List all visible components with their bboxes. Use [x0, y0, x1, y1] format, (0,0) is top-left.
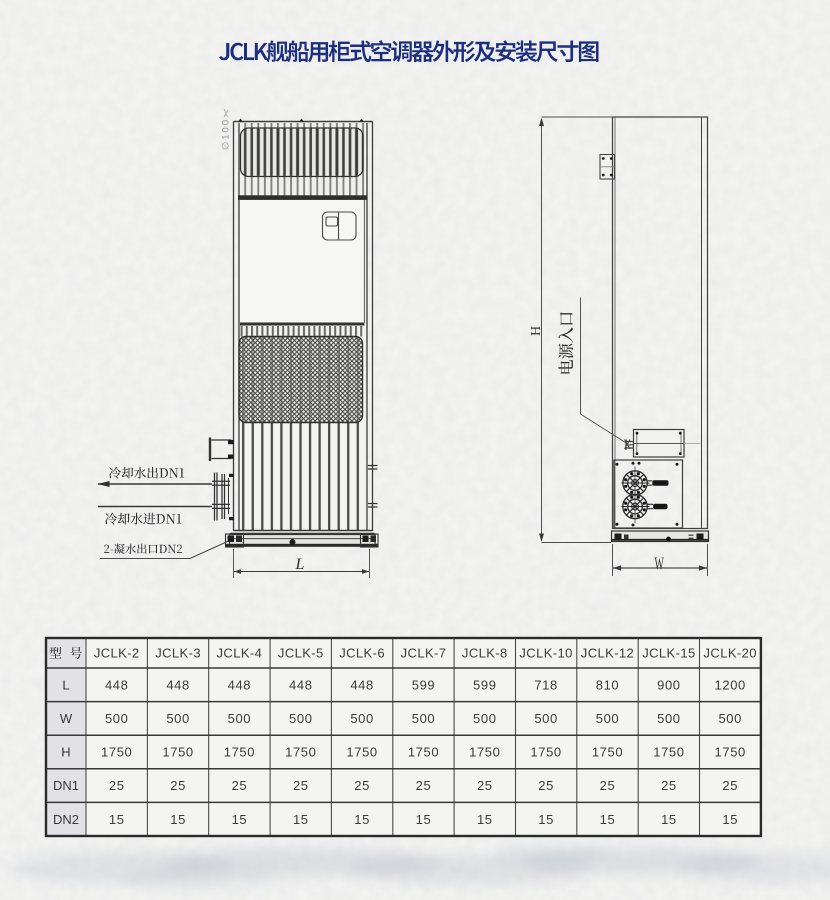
- svg-text:JCLK-10: JCLK-10: [519, 646, 572, 661]
- svg-text:1750: 1750: [224, 745, 255, 760]
- svg-text:1750: 1750: [162, 745, 193, 760]
- svg-text:JCLK-5: JCLK-5: [278, 646, 324, 661]
- svg-text:1750: 1750: [469, 745, 500, 760]
- svg-text:25: 25: [109, 778, 125, 793]
- svg-text:25: 25: [538, 778, 554, 793]
- svg-text:1750: 1750: [101, 745, 132, 760]
- svg-text:500: 500: [228, 711, 252, 726]
- svg-text:500: 500: [718, 711, 742, 726]
- svg-text:15: 15: [293, 812, 309, 827]
- svg-text:∅100: ∅100: [221, 118, 232, 150]
- svg-text:25: 25: [170, 778, 186, 793]
- svg-text:25: 25: [232, 778, 248, 793]
- svg-text:15: 15: [477, 812, 493, 827]
- svg-text:500: 500: [657, 711, 681, 726]
- svg-text:500: 500: [166, 711, 190, 726]
- svg-text:718: 718: [534, 677, 558, 692]
- svg-text:1750: 1750: [715, 745, 746, 760]
- svg-text:15: 15: [600, 812, 616, 827]
- svg-text:500: 500: [412, 711, 436, 726]
- svg-text:15: 15: [416, 812, 432, 827]
- svg-text:500: 500: [534, 711, 558, 726]
- svg-text:599: 599: [412, 677, 436, 692]
- svg-text:15: 15: [109, 812, 125, 827]
- svg-text:JCLK-3: JCLK-3: [155, 646, 201, 661]
- svg-text:25: 25: [477, 778, 493, 793]
- svg-text:599: 599: [473, 677, 497, 692]
- svg-text:JCLK-2: JCLK-2: [94, 646, 140, 661]
- svg-text:W: W: [60, 711, 73, 726]
- svg-text:15: 15: [722, 812, 738, 827]
- svg-text:JCLK-15: JCLK-15: [642, 646, 695, 661]
- svg-text:1750: 1750: [530, 745, 561, 760]
- svg-text:448: 448: [289, 677, 313, 692]
- svg-text:1750: 1750: [653, 745, 684, 760]
- svg-text:15: 15: [538, 812, 554, 827]
- svg-text:1750: 1750: [408, 745, 439, 760]
- svg-text:25: 25: [722, 778, 738, 793]
- svg-text:25: 25: [661, 778, 677, 793]
- svg-text:448: 448: [350, 677, 374, 692]
- svg-text:25: 25: [293, 778, 309, 793]
- svg-text:DN1: DN1: [53, 778, 79, 793]
- svg-text:1200: 1200: [715, 677, 746, 692]
- svg-text:JCLK-7: JCLK-7: [401, 646, 447, 661]
- svg-text:1750: 1750: [592, 745, 623, 760]
- svg-text:H: H: [529, 326, 544, 336]
- svg-text:1750: 1750: [346, 745, 377, 760]
- svg-text:1750: 1750: [285, 745, 316, 760]
- svg-text:H: H: [61, 745, 70, 760]
- svg-text:448: 448: [105, 677, 129, 692]
- svg-text:15: 15: [661, 812, 677, 827]
- svg-text:25: 25: [354, 778, 370, 793]
- svg-text:JCLK-20: JCLK-20: [704, 646, 757, 661]
- svg-text:15: 15: [354, 812, 370, 827]
- svg-text:W: W: [655, 555, 665, 575]
- svg-text:448: 448: [228, 677, 252, 692]
- svg-text:500: 500: [473, 711, 497, 726]
- svg-text:25: 25: [416, 778, 432, 793]
- svg-text:500: 500: [596, 711, 620, 726]
- svg-text:JCLK-12: JCLK-12: [581, 646, 634, 661]
- svg-text:900: 900: [657, 677, 681, 692]
- svg-text:JCLK-6: JCLK-6: [339, 646, 385, 661]
- svg-text:JCLK-8: JCLK-8: [462, 646, 508, 661]
- svg-text:810: 810: [596, 677, 620, 692]
- svg-text:15: 15: [232, 812, 248, 827]
- svg-text:15: 15: [170, 812, 186, 827]
- svg-text:448: 448: [166, 677, 190, 692]
- svg-text:L: L: [295, 556, 305, 573]
- svg-text:500: 500: [289, 711, 313, 726]
- svg-text:JCLK-4: JCLK-4: [217, 646, 263, 661]
- svg-text:500: 500: [350, 711, 374, 726]
- svg-text:L: L: [62, 677, 69, 692]
- svg-text:500: 500: [105, 711, 129, 726]
- svg-text:25: 25: [600, 778, 616, 793]
- svg-text:DN2: DN2: [53, 812, 79, 827]
